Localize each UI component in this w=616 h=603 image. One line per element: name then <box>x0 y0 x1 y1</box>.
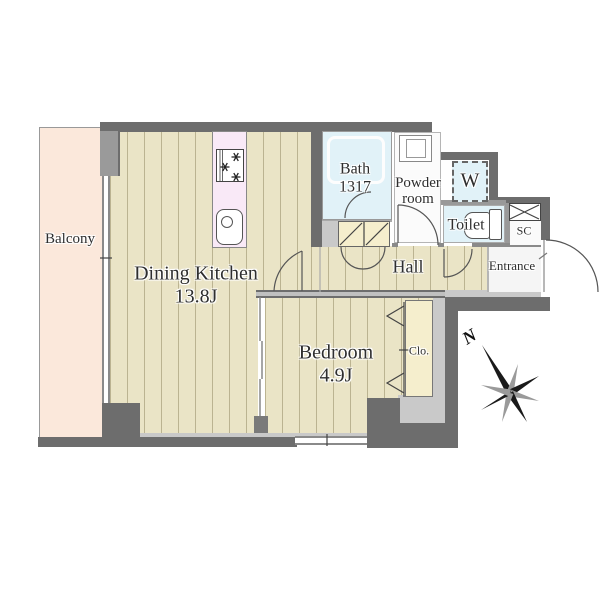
closet-under-lining <box>398 395 433 423</box>
faucet-circle-icon <box>221 216 233 228</box>
balcony-area <box>39 127 105 439</box>
stove-icon <box>216 149 244 182</box>
wall-bottom-right-corner <box>367 423 458 448</box>
shoe-closet-upper-cabinet <box>509 203 541 221</box>
wall-dk-bath <box>311 131 322 247</box>
toilet-tank-icon <box>489 209 502 240</box>
powder-room-label-line2: room <box>402 192 434 208</box>
entrance-label: Entrance <box>489 259 535 273</box>
shoe-closet-label: SC <box>517 225 532 238</box>
wall-bottom-left-step <box>102 403 140 437</box>
toilet-label: Toilet <box>447 218 484 235</box>
powder-room-label-line1: Powder <box>395 176 441 192</box>
balcony-window <box>102 176 110 403</box>
wall-bottom-right-step <box>367 398 400 423</box>
compass-north-icon: N <box>458 324 539 422</box>
wall-right-upper <box>541 205 550 240</box>
compass-north-label: N <box>458 324 481 349</box>
dining-kitchen-size: 13.8J <box>175 287 218 308</box>
bedroom-label: Bedroom <box>299 343 373 364</box>
bath-size: 1317 <box>339 180 371 197</box>
balcony-label: Balcony <box>45 232 95 248</box>
bedroom-window <box>295 436 367 445</box>
partition-foot <box>254 416 268 433</box>
hall-label: Hall <box>393 258 424 277</box>
wall-hall-top-seg2 <box>438 243 444 247</box>
bedroom-size: 4.9J <box>320 366 353 387</box>
bath-label: Bath <box>340 162 370 179</box>
wall-entrance-bottom <box>443 297 550 311</box>
powder-sink-basin <box>406 139 426 158</box>
wall-top-left-pier <box>100 131 120 176</box>
washer-label: W <box>461 171 480 192</box>
closet-label: Clo. <box>409 345 429 358</box>
bedroom-partition-line <box>260 297 262 416</box>
floor-plan: N Balcony Dining Kitchen 13.8J Bedroom 4… <box>0 0 616 603</box>
wall-chunk-left-of-storage <box>322 221 338 247</box>
entrance-door-arc <box>546 240 598 292</box>
wall-hall-top-seg1 <box>392 243 398 247</box>
hall-storage-cabinet <box>338 221 390 247</box>
dining-kitchen-label: Dining Kitchen <box>134 264 258 285</box>
wall-hall-bedroom <box>256 290 445 298</box>
wall-bottom <box>38 437 297 447</box>
